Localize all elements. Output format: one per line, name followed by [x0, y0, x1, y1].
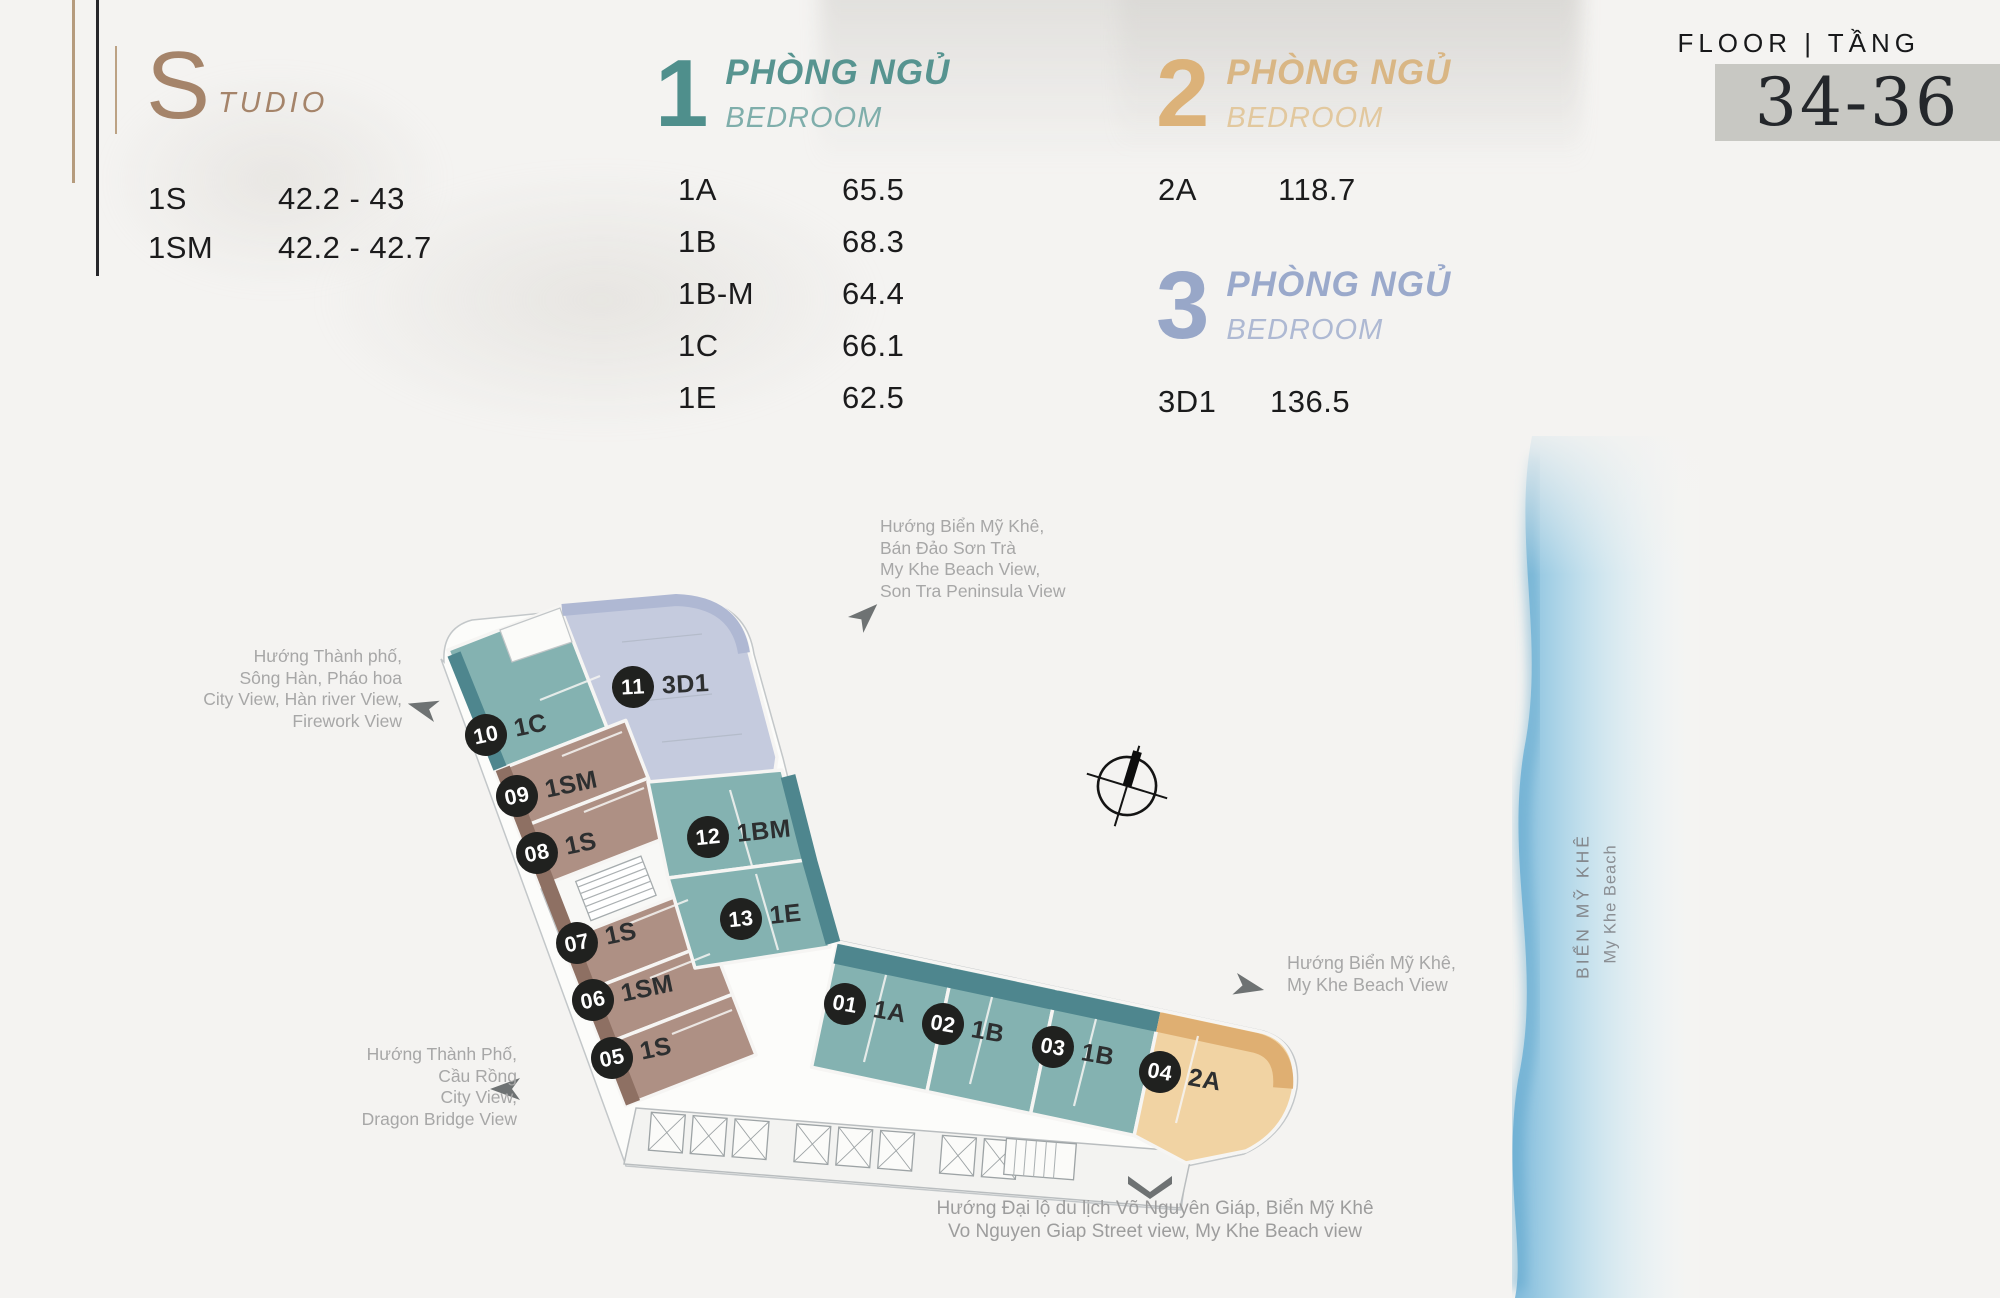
title-en: BEDROOM — [1226, 314, 1451, 347]
unit-code: 1SM — [148, 230, 278, 266]
unit-code: 1B — [678, 224, 842, 260]
unit-code: 3D1 — [1158, 384, 1270, 420]
annotation-beach-east: Hướng Biển Mỹ Khê, My Khe Beach View — [1287, 952, 1456, 996]
unit-code: 2A — [1158, 172, 1278, 208]
annotation-line: Hướng Biển Mỹ Khê, — [880, 516, 1066, 538]
beach-label-vn: BIỂN MỸ KHÊ — [1573, 833, 1594, 979]
unit-area: 136.5 — [1270, 384, 1350, 420]
title-vn: PHÒNG NGỦ — [1226, 265, 1451, 305]
annotation-line: Firework View — [140, 711, 402, 733]
legend-row: 1B 68.3 — [678, 224, 904, 276]
legend-row: 1E 62.5 — [678, 380, 904, 432]
unit-area: 42.2 - 43 — [278, 181, 405, 217]
bedroom-count: 1 — [655, 52, 708, 136]
arrow-left-icon — [405, 693, 440, 722]
legend-row: 2A 118.7 — [1158, 172, 1356, 224]
legend-row: 1A 65.5 — [678, 172, 904, 224]
one-bedroom-legend-rows: 1A 65.5 1B 68.3 1B-M 64.4 1C 66.1 1E 62.… — [678, 172, 904, 432]
annotation-line: Bán Đảo Sơn Trà — [880, 538, 1066, 560]
one-bedroom-legend-title: 1 PHÒNG NGỦ BEDROOM — [655, 52, 950, 136]
unit-13-shape — [668, 860, 830, 968]
studio-legend-title: S TUDIO — [146, 44, 328, 128]
unit-code: 1B-M — [678, 276, 842, 312]
unit-code: 1C — [678, 328, 842, 364]
studio-legend-rows: 1S 42.2 - 43 1SM 42.2 - 42.7 — [148, 181, 432, 279]
unit-area: 118.7 — [1278, 172, 1356, 208]
floor-label: FLOOR | TẦNG — [1677, 28, 1920, 59]
annotation-line: Dragon Bridge View — [255, 1109, 517, 1131]
studio-word: TUDIO — [218, 87, 328, 120]
annotation-beach-north: Hướng Biển Mỹ Khê, Bán Đảo Sơn Trà My Kh… — [880, 516, 1066, 602]
annotation-line: Hướng Thành phố, — [140, 646, 402, 668]
title-vn: PHÒNG NGỦ — [1226, 53, 1451, 93]
unit-code: 1A — [678, 172, 842, 208]
annotation-line: My Khe Beach View, — [880, 559, 1066, 581]
legend-row: 1C 66.1 — [678, 328, 904, 380]
annotation-line: Son Tra Peninsula View — [880, 581, 1066, 603]
floor-range-badge: 34-36 — [1715, 64, 2000, 141]
annotation-line: My Khe Beach View — [1287, 974, 1456, 996]
unit-area: 65.5 — [842, 172, 904, 208]
legend-row: 1SM 42.2 - 42.7 — [148, 230, 432, 279]
unit-area: 62.5 — [842, 380, 904, 416]
legend-row: 3D1 136.5 — [1158, 384, 1350, 436]
legend-row: 1B-M 64.4 — [678, 276, 904, 328]
bedroom-count: 3 — [1156, 264, 1209, 348]
annotation-line: City View, — [255, 1087, 517, 1109]
two-bedroom-legend-title: 2 PHÒNG NGỦ BEDROOM — [1156, 52, 1451, 136]
annotation-line: Hướng Đại lộ du lịch Võ Nguyên Giáp, Biể… — [760, 1197, 1550, 1220]
unit-area: 66.1 — [842, 328, 904, 364]
annotation-city-west: Hướng Thành phố, Sông Hàn, Pháo hoa City… — [140, 646, 402, 732]
floorplan-page: S TUDIO 1S 42.2 - 43 1SM 42.2 - 42.7 1 P… — [0, 0, 2000, 1298]
annotation-line: City View, Hàn river View, — [140, 689, 402, 711]
two-bedroom-legend-rows: 2A 118.7 — [1158, 172, 1356, 224]
unit-code: 1S — [148, 181, 278, 217]
beach-label-en: My Khe Beach — [1602, 844, 1621, 963]
studio-letter: S — [146, 44, 210, 128]
annotation-line: Hướng Biển Mỹ Khê, — [1287, 952, 1456, 974]
three-bedroom-legend-rows: 3D1 136.5 — [1158, 384, 1350, 436]
bedroom-count: 2 — [1156, 52, 1209, 136]
annotation-street-south: Hướng Đại lộ du lịch Võ Nguyên Giáp, Biể… — [760, 1197, 1550, 1243]
unit-area: 64.4 — [842, 276, 904, 312]
title-en: BEDROOM — [725, 102, 950, 135]
title-vn: PHÒNG NGỦ — [725, 53, 950, 93]
annotation-line: Sông Hàn, Pháo hoa — [140, 668, 402, 690]
unit-area: 68.3 — [842, 224, 904, 260]
arrow-right-icon — [1232, 973, 1266, 1001]
annotation-line: Cầu Rồng — [255, 1066, 517, 1088]
three-bedroom-legend-title: 3 PHÒNG NGỦ BEDROOM — [1156, 264, 1451, 348]
title-en: BEDROOM — [1226, 102, 1451, 135]
annotation-line: Vo Nguyen Giap Street view, My Khe Beach… — [760, 1220, 1550, 1243]
legend-row: 1S 42.2 - 43 — [148, 181, 432, 230]
compass-icon — [1075, 734, 1180, 839]
unit-code: 1E — [678, 380, 842, 416]
unit-area: 42.2 - 42.7 — [278, 230, 432, 266]
annotation-line: Hướng Thành Phố, — [255, 1044, 517, 1066]
annotation-dragon-bridge: Hướng Thành Phố, Cầu Rồng City View, Dra… — [255, 1044, 517, 1130]
